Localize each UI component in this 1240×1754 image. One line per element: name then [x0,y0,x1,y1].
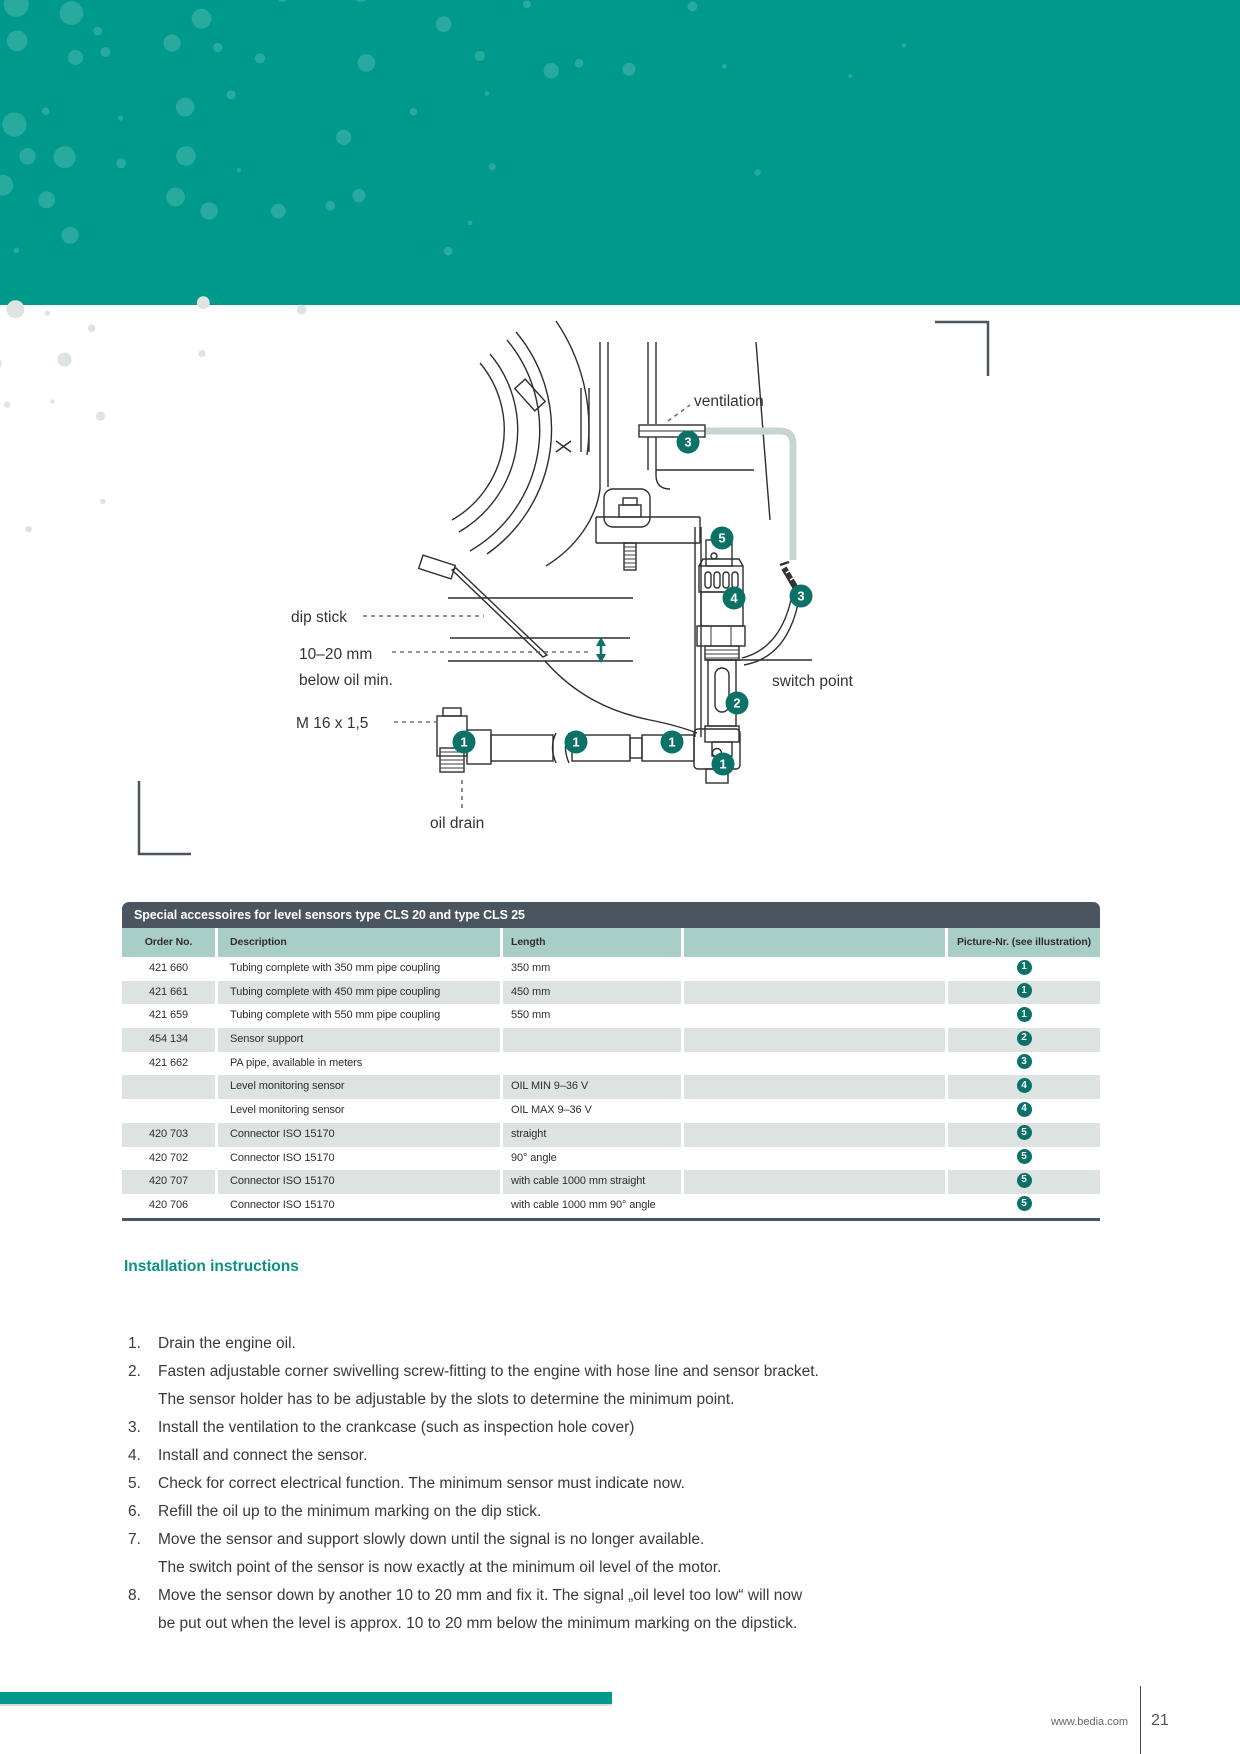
dip-stick-line [452,568,547,657]
instruction-item: 8. Move the sensor down by another 10 to… [128,1582,1108,1638]
picture-nr-cell: 1 [945,957,1100,981]
order-no-cell: 420 702 [122,1147,215,1171]
description-cell: Level monitoring sensor [215,1075,500,1099]
order-no-cell [122,1075,215,1099]
callout-1-b: 1 [565,731,588,754]
svg-text:4: 4 [730,591,738,606]
picture-nr-badge: 5 [1017,1173,1032,1188]
callout-2: 2 [726,692,749,715]
instruction-number: 5. [128,1470,158,1498]
order-no-cell: 420 707 [122,1170,215,1194]
blank-cell [681,1194,945,1218]
blank-cell [681,1052,945,1076]
instruction-text: Move the sensor down by another 10 to 20… [158,1582,1108,1610]
description-cell: Level monitoring sensor [215,1099,500,1123]
picture-nr-badge: 3 [1017,1054,1032,1069]
picture-nr-badge: 1 [1017,1007,1032,1022]
table-row: 420 702 Connector ISO 15170 90° angle 5 [122,1147,1100,1171]
svg-text:1: 1 [460,735,467,750]
picture-nr-badge: 5 [1017,1149,1032,1164]
picture-nr-badge: 4 [1017,1078,1032,1093]
description-cell: Connector ISO 15170 [215,1194,500,1218]
instruction-number: 7. [128,1526,158,1582]
table-row: 421 659 Tubing complete with 550 mm pipe… [122,1004,1100,1028]
instruction-text: Move the sensor and support slowly down … [158,1526,1108,1554]
length-cell: straight [500,1123,681,1147]
description-cell: Tubing complete with 350 mm pipe couplin… [215,957,500,981]
table-title: Special accessoires for level sensors ty… [122,902,1100,928]
picture-nr-cell: 1 [945,1004,1100,1028]
instruction-text: Install and connect the sensor. [158,1442,1108,1470]
svg-text:3: 3 [684,435,691,450]
instruction-number: 2. [128,1358,158,1414]
engine-cross-section [419,321,812,783]
table-row: 421 660 Tubing complete with 350 mm pipe… [122,957,1100,981]
length-cell: 450 mm [500,981,681,1005]
table-row: 420 706 Connector ISO 15170 with cable 1… [122,1194,1100,1218]
instruction-number: 1. [128,1330,158,1358]
column-header-length: Length [500,928,681,957]
blank-cell [681,1170,945,1194]
order-no-cell: 420 706 [122,1194,215,1218]
blank-cell [681,981,945,1005]
table-row: 420 707 Connector ISO 15170 with cable 1… [122,1170,1100,1194]
description-cell: Connector ISO 15170 [215,1147,500,1171]
callout-1-c: 1 [661,731,684,754]
callout-1-d: 1 [712,753,735,776]
instructions-heading: Installation instructions [124,1258,299,1276]
description-cell: Sensor support [215,1028,500,1052]
installation-diagram: ventilation dip stick 10–20 mm below oil… [0,300,1240,870]
order-no-cell: 421 661 [122,981,215,1005]
instruction-text: The switch point of the sensor is now ex… [158,1554,1108,1582]
picture-nr-cell: 5 [945,1123,1100,1147]
blank-cell [681,1123,945,1147]
footer-divider [1140,1686,1141,1754]
order-no-cell [122,1099,215,1123]
callout-3-side: 3 [790,585,813,608]
description-cell: PA pipe, available in meters [215,1052,500,1076]
label-switch-point: switch point [772,673,854,690]
blank-cell [681,1004,945,1028]
corner-mark-bottom-left [139,781,191,854]
instruction-number: 3. [128,1414,158,1442]
instruction-text: Install the ventilation to the crankcase… [158,1414,1108,1442]
corner-mark-top-right [935,322,988,376]
leader-lines [363,405,690,810]
blank-cell [681,1147,945,1171]
svg-text:2: 2 [733,696,740,711]
instruction-item: 2. Fasten adjustable corner swivelling s… [128,1358,1108,1414]
gap-arrow [596,637,606,663]
flange-bolt [619,498,641,570]
catalog-page: ventilation dip stick 10–20 mm below oil… [0,0,1240,1754]
picture-nr-cell: 3 [945,1052,1100,1076]
instruction-text: Fasten adjustable corner swivelling scre… [158,1358,1108,1386]
instruction-number: 8. [128,1582,158,1638]
label-range: 10–20 mm [299,646,372,663]
column-header-picture-nr: Picture-Nr. (see illustration) [945,928,1100,957]
footer-teal-bar [0,1692,612,1706]
table-row: 454 134 Sensor support 2 [122,1028,1100,1052]
picture-nr-badge: 4 [1017,1102,1032,1117]
picture-nr-cell: 1 [945,981,1100,1005]
length-cell [500,1028,681,1052]
picture-nr-badge: 2 [1017,1031,1032,1046]
length-cell [500,1052,681,1076]
length-cell: 90° angle [500,1147,681,1171]
length-cell: OIL MIN 9–36 V [500,1075,681,1099]
instruction-item: 6. Refill the oil up to the minimum mark… [128,1498,1108,1526]
description-cell: Tubing complete with 550 mm pipe couplin… [215,1004,500,1028]
label-below-oil-min: below oil min. [299,672,393,689]
blank-cell [681,1099,945,1123]
blank-cell [681,957,945,981]
instruction-item: 5. Check for correct electrical function… [128,1470,1108,1498]
sensor-assembly [697,540,745,756]
svg-text:5: 5 [718,531,725,546]
table-row: 421 662 PA pipe, available in meters 3 [122,1052,1100,1076]
instruction-item: 1. Drain the engine oil. [128,1330,1108,1358]
order-no-cell: 421 660 [122,957,215,981]
accessories-table: Special accessoires for level sensors ty… [122,902,1100,1221]
length-cell: with cable 1000 mm straight [500,1170,681,1194]
instruction-number: 6. [128,1498,158,1526]
picture-nr-cell: 4 [945,1075,1100,1099]
label-ventilation: ventilation [694,393,764,410]
order-no-cell: 421 662 [122,1052,215,1076]
table-row: Level monitoring sensor OIL MIN 9–36 V 4 [122,1075,1100,1099]
svg-text:3: 3 [797,589,804,604]
column-header-blank [681,928,945,957]
svg-text:1: 1 [719,757,726,772]
description-cell: Connector ISO 15170 [215,1123,500,1147]
instruction-text: Check for correct electrical function. T… [158,1470,1108,1498]
length-cell: 350 mm [500,957,681,981]
flywheel-arcs [419,321,589,579]
page-number: 21 [1151,1712,1169,1730]
label-oil-drain: oil drain [430,815,484,832]
blank-cell [681,1028,945,1052]
picture-nr-badge: 1 [1017,983,1032,998]
callout-1-a: 1 [453,731,476,754]
callout-4: 4 [723,587,746,610]
order-no-cell: 454 134 [122,1028,215,1052]
label-dip-stick: dip stick [291,609,347,626]
column-header-order-no: Order No. [122,928,215,957]
picture-nr-badge: 1 [1017,960,1032,975]
order-no-cell: 420 703 [122,1123,215,1147]
svg-text:1: 1 [668,735,675,750]
label-thread: M 16 x 1,5 [296,715,368,732]
table-row: Level monitoring sensor OIL MAX 9–36 V 4 [122,1099,1100,1123]
length-cell: OIL MAX 9–36 V [500,1099,681,1123]
table-row: 420 703 Connector ISO 15170 straight 5 [122,1123,1100,1147]
instruction-item: 3. Install the ventilation to the crankc… [128,1414,1108,1442]
length-cell: with cable 1000 mm 90° angle [500,1194,681,1218]
instruction-text: The sensor holder has to be adjustable b… [158,1386,1108,1414]
table-header-row: Order No. Description Length Picture-Nr.… [122,928,1100,957]
instruction-item: 4. Install and connect the sensor. [128,1442,1108,1470]
sensor-hose [742,600,798,665]
picture-nr-cell: 5 [945,1170,1100,1194]
picture-nr-badge: 5 [1017,1196,1032,1211]
table-body: 421 660 Tubing complete with 350 mm pipe… [122,957,1100,1221]
length-cell: 550 mm [500,1004,681,1028]
picture-nr-cell: 5 [945,1194,1100,1218]
column-header-description: Description [215,928,500,957]
picture-nr-cell: 5 [945,1147,1100,1171]
blank-cell [681,1075,945,1099]
footer-website: www.bedia.com [928,1716,1128,1728]
instructions-list: 1. Drain the engine oil. 2. Fasten adjus… [128,1330,1108,1638]
instruction-text: Drain the engine oil. [158,1330,1108,1358]
description-cell: Connector ISO 15170 [215,1170,500,1194]
instruction-text: be put out when the level is approx. 10 … [158,1610,1108,1638]
instruction-item: 7. Move the sensor and support slowly do… [128,1526,1108,1582]
instruction-number: 4. [128,1442,158,1470]
picture-nr-cell: 4 [945,1099,1100,1123]
description-cell: Tubing complete with 450 mm pipe couplin… [215,981,500,1005]
picture-nr-cell: 2 [945,1028,1100,1052]
svg-text:1: 1 [572,735,579,750]
callout-3-top: 3 [677,431,700,454]
instruction-text: Refill the oil up to the minimum marking… [158,1498,1108,1526]
table-row: 421 661 Tubing complete with 450 mm pipe… [122,981,1100,1005]
picture-nr-badge: 5 [1017,1125,1032,1140]
callout-5: 5 [711,527,734,550]
order-no-cell: 421 659 [122,1004,215,1028]
